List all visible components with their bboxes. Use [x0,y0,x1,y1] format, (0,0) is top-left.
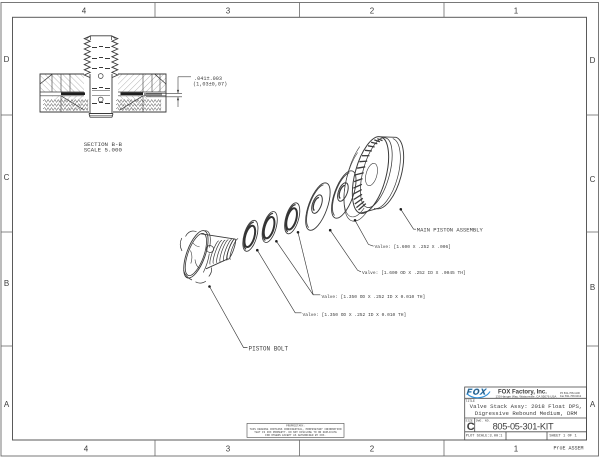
svg-text:DWG. NO.: DWG. NO. [476,419,491,422]
svg-text:A: A [590,400,596,409]
svg-text:A: A [4,400,10,409]
svg-text:MAIN PISTON ASSEMBLY: MAIN PISTON ASSEMBLY [417,227,484,234]
svg-text:SHEET 1 OF 1: SHEET 1 OF 1 [549,435,577,439]
svg-text:1: 1 [514,7,519,16]
svg-text:Valve: [1.350 OD X .252 ID X 0: Valve: [1.350 OD X .252 ID X 0.010 TH] [303,312,407,318]
svg-text:2: 2 [370,445,375,454]
svg-text:D: D [590,56,596,65]
svg-text:C: C [4,173,10,182]
svg-text:1: 1 [514,445,519,454]
svg-text:C: C [467,421,475,433]
svg-text:Valve: [1.600 X .252 X .006]: Valve: [1.600 X .252 X .006] [375,244,451,250]
svg-text:(1,03±0,07): (1,03±0,07) [193,81,227,87]
svg-text:ProE ASSEM: ProE ASSEM [553,446,583,452]
svg-text:805-05-301-KIT: 805-05-301-KIT [493,422,554,432]
svg-text:SCALE 5.000: SCALE 5.000 [84,147,123,154]
svg-text:4: 4 [84,445,89,454]
svg-text:D: D [4,55,10,64]
svg-text:Valve: [1.350 OD X .252 ID X 0: Valve: [1.350 OD X .252 ID X 0.010 TH] [322,294,426,300]
svg-text:FOR OTHERS EXCEPT AS AUTHORIZE: FOR OTHERS EXCEPT AS AUTHORIZED BY FOX. [265,434,326,437]
svg-text:Valve: [1.600 OD X .252 ID X .: Valve: [1.600 OD X .252 ID X .0045 TH] [362,270,466,276]
svg-text:4: 4 [82,7,87,16]
svg-text:C: C [590,175,596,184]
svg-text:2: 2 [370,7,375,16]
svg-text:3: 3 [226,7,231,16]
svg-text:3: 3 [226,445,231,454]
svg-text:Digressive Rebound Medium, DRM: Digressive Rebound Medium, DRM [475,410,578,417]
svg-text:B: B [590,283,595,292]
svg-text:PLOT SCALE:3.00:1: PLOT SCALE:3.00:1 [466,435,503,439]
svg-text:Fax 831-768-9312: Fax 831-768-9312 [560,394,582,398]
svg-text:PISTON BOLT: PISTON BOLT [249,346,289,353]
svg-text:B: B [4,279,9,288]
svg-text:130 Hanger Way, Watsonville, C: 130 Hanger Way, Watsonville, CA 95076 US… [496,394,557,398]
